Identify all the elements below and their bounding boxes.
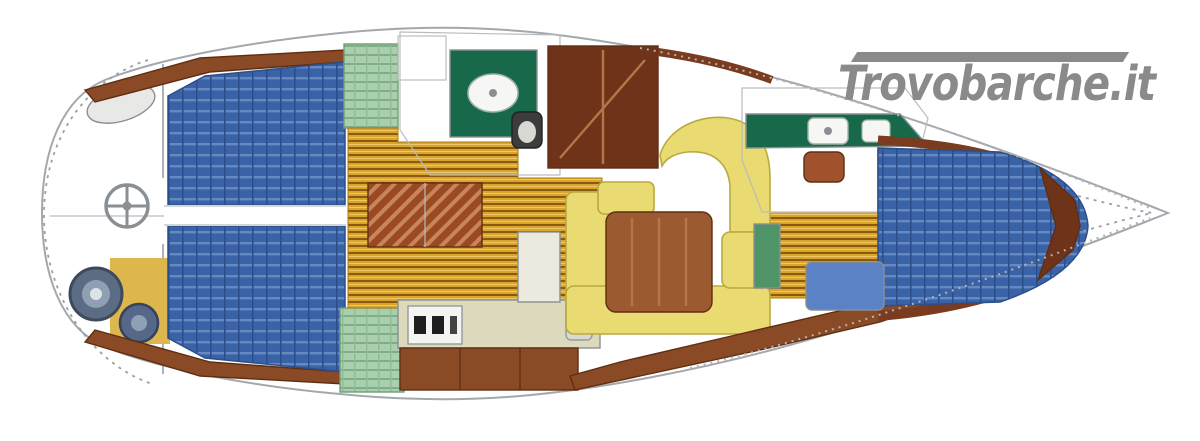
winch-small	[120, 304, 158, 342]
galley-column	[518, 232, 560, 302]
aft-berth-starboard	[168, 226, 345, 372]
forward-cabin-seat	[806, 262, 884, 310]
forward-head-faucet	[824, 127, 832, 135]
nav-wardrobe	[548, 46, 658, 168]
side-cabinet-green	[754, 224, 780, 288]
aft-head-faucet	[489, 89, 497, 97]
forward-head-toilet	[804, 152, 844, 182]
watermark-text: Trovobarche.it	[838, 56, 1155, 112]
settee-top-seat	[598, 182, 654, 214]
aft-head-toilet	[512, 112, 542, 148]
steering-wheel	[106, 185, 148, 227]
wardrobe-starboard	[340, 308, 404, 392]
dining-table	[606, 212, 712, 312]
galley-lower-cabinet	[400, 348, 578, 390]
galley-stove	[408, 306, 462, 344]
aft-berth-port	[168, 62, 345, 205]
winch-large	[70, 268, 122, 320]
wardrobe-port	[344, 44, 398, 128]
boat-layout-image: Trovobarche.it	[0, 0, 1200, 441]
engine-walkway	[164, 205, 346, 226]
watermark-logo: Trovobarche.it	[838, 42, 1198, 114]
